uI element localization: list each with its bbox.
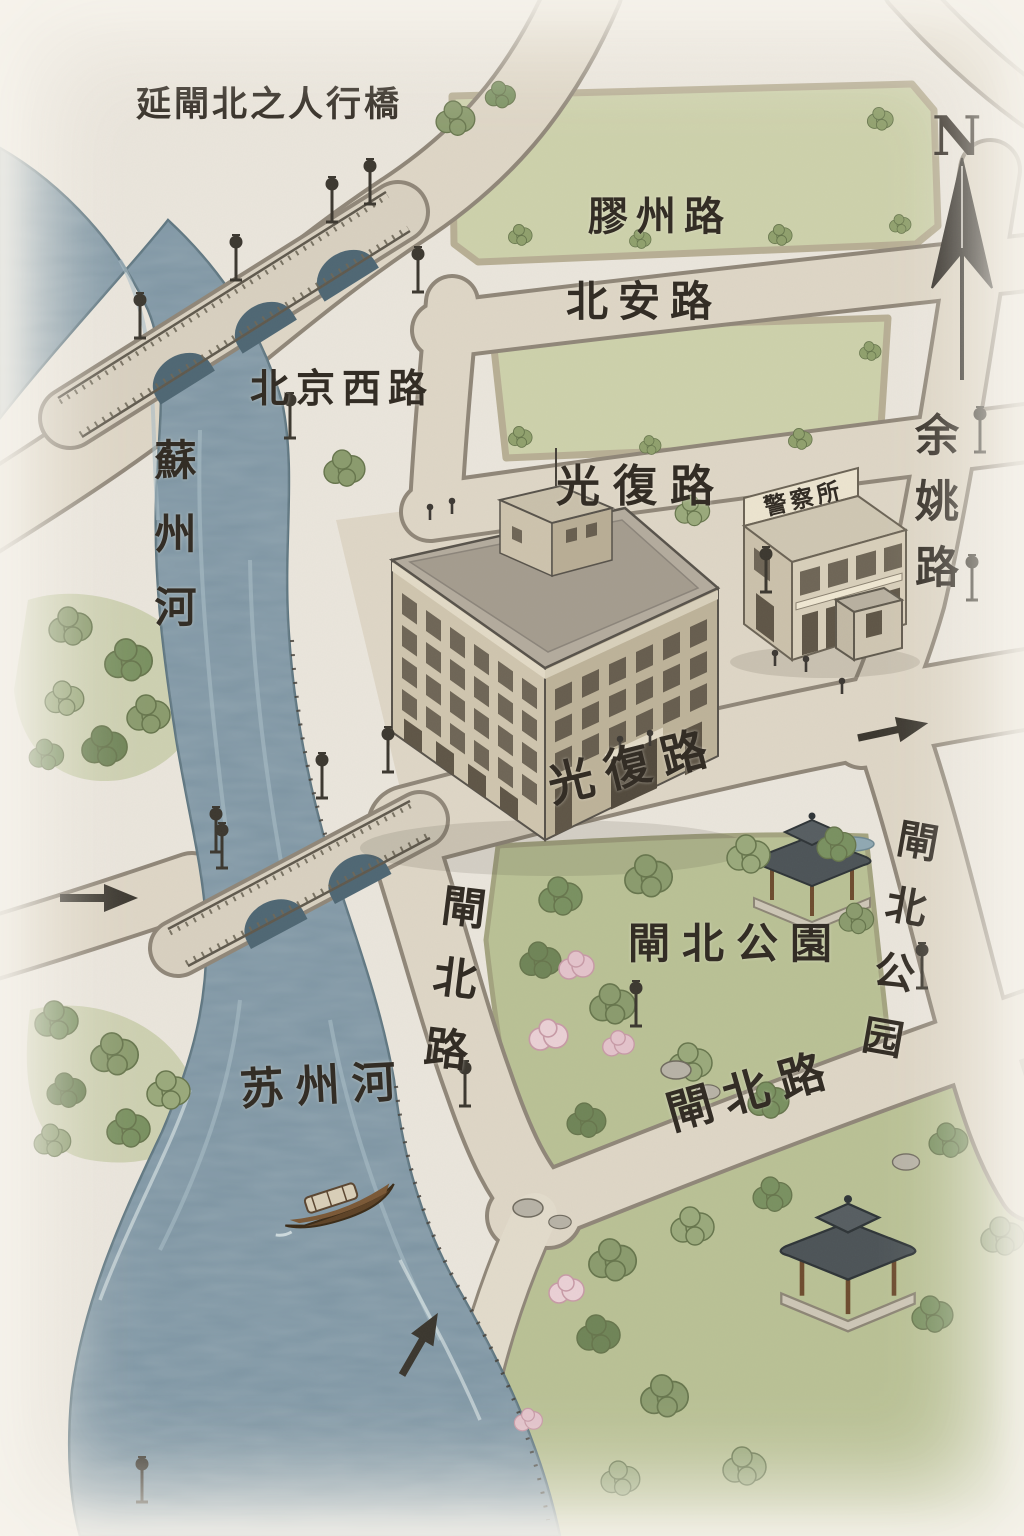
map-canvas: 延閘北之人行橋 膠州路 北安路 北京西路 光復路 蘇州河 余姚路 警察所 光復路… (0, 0, 1024, 1536)
paper-grain (0, 0, 1024, 1536)
map-art (0, 0, 1024, 1536)
